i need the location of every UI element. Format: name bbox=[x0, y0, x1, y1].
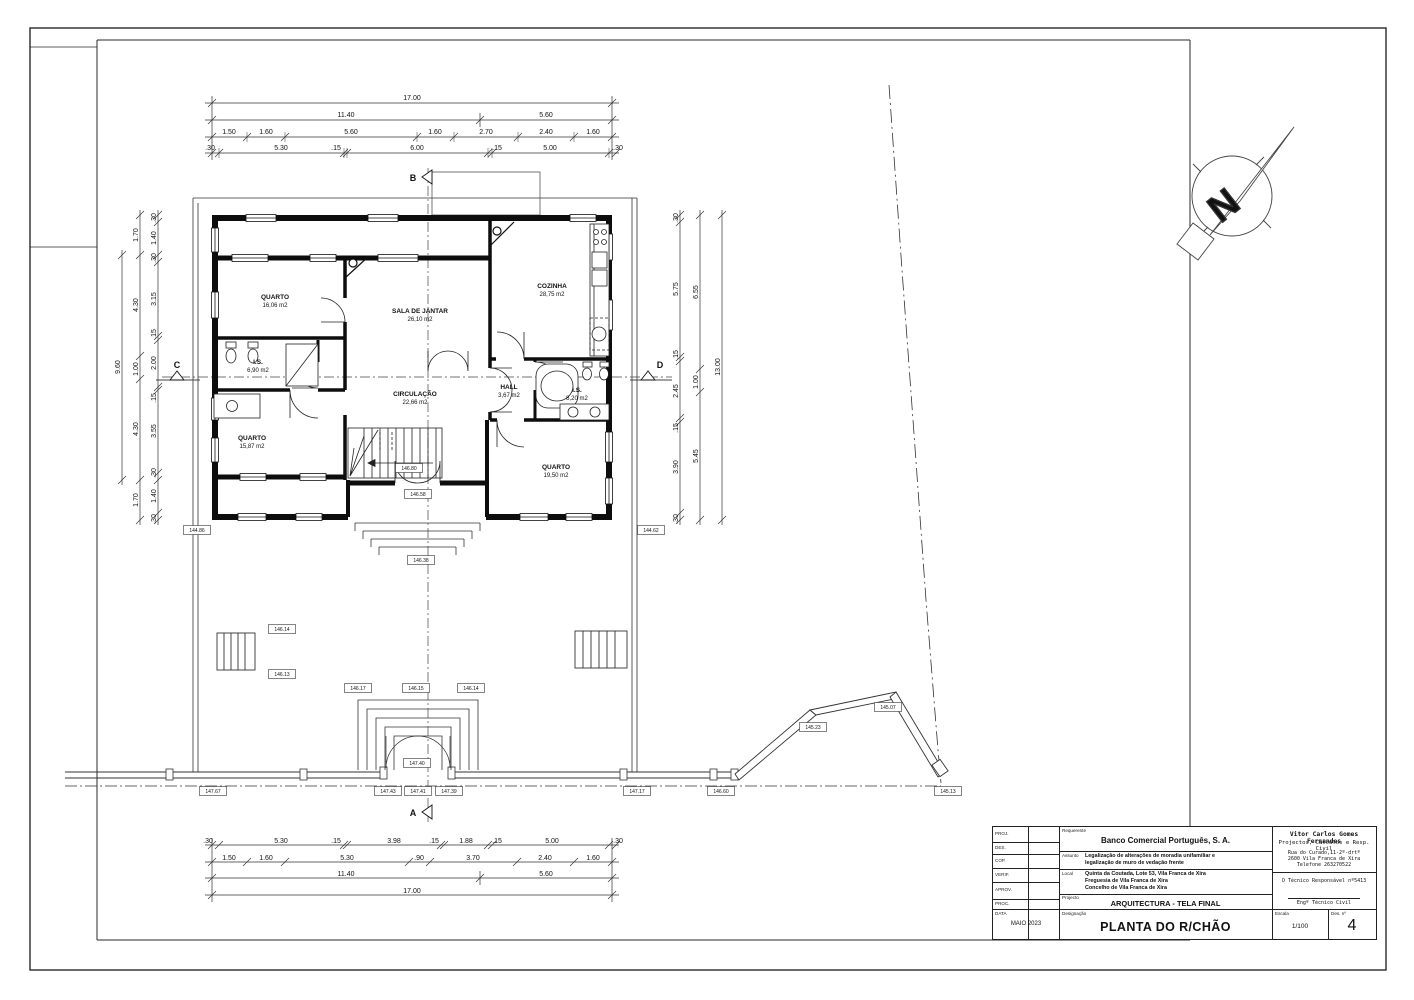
room-area: 3,67 m2 bbox=[498, 393, 520, 399]
dimension-label: 5.60 bbox=[539, 112, 553, 119]
north-arrow-icon: N bbox=[1177, 127, 1294, 260]
dimension-label: .15 bbox=[331, 838, 341, 845]
dimension-label: .90 bbox=[414, 855, 424, 862]
level-badge: 147.41 bbox=[405, 787, 432, 796]
field-local-label: Local bbox=[1062, 871, 1073, 876]
dimension-label: .15 bbox=[331, 145, 341, 152]
field-requerente-label: Requerente bbox=[1062, 828, 1086, 833]
field-aprov-label: APROV. bbox=[995, 887, 1012, 892]
north-letter: N bbox=[1200, 181, 1247, 231]
dimension-labels-bottom: .30 5.30 .15 3.98 .15 1.88 .15 5.00 .30 … bbox=[203, 838, 623, 895]
dimension-label: 3.15 bbox=[151, 292, 158, 306]
dimension-label: .15 bbox=[429, 838, 439, 845]
room-area: 15,87 m2 bbox=[239, 444, 265, 450]
dimension-label: .15 bbox=[492, 838, 502, 845]
field-drawing-number: 4 bbox=[1328, 917, 1376, 935]
svg-text:146.38: 146.38 bbox=[413, 558, 429, 564]
field-address-3: Telefone 263270522 bbox=[1272, 862, 1376, 868]
svg-text:147.40: 147.40 bbox=[409, 761, 425, 767]
field-des-label: DES. bbox=[995, 845, 1006, 850]
field-local-2: Freguesia de Vila Franca de Xira bbox=[1085, 878, 1168, 884]
svg-text:147.67: 147.67 bbox=[205, 789, 221, 795]
svg-text:146.17: 146.17 bbox=[350, 686, 366, 692]
dimension-label: .30 bbox=[613, 145, 623, 152]
dimension-label: 1.60 bbox=[259, 855, 273, 862]
dimension-label: .30 bbox=[203, 838, 213, 845]
dimension-label: 3.55 bbox=[151, 424, 158, 438]
dimension-label: 3.98 bbox=[387, 838, 401, 845]
section-marker-c: C bbox=[174, 360, 181, 370]
dimension-label: 4.30 bbox=[133, 298, 140, 312]
level-badge: 146.15 bbox=[403, 684, 430, 693]
room-label: HALL bbox=[500, 384, 517, 391]
svg-text:146.15: 146.15 bbox=[408, 686, 424, 692]
field-assunto-1: Legalização de alterações de moradia uni… bbox=[1085, 853, 1215, 859]
dimension-label: 4.30 bbox=[133, 422, 140, 436]
svg-text:146.13: 146.13 bbox=[274, 672, 290, 678]
level-badge: 146.60 bbox=[708, 787, 735, 796]
svg-text:144.86: 144.86 bbox=[189, 528, 205, 534]
level-badge: 145.07 bbox=[875, 703, 902, 712]
level-badge: 146.38 bbox=[408, 556, 435, 565]
dimension-label: .30 bbox=[151, 213, 158, 223]
svg-text:145.07: 145.07 bbox=[880, 705, 896, 711]
field-requerente: Banco Comercial Português, S. A. bbox=[1059, 836, 1272, 845]
section-marker-d: D bbox=[657, 360, 664, 370]
dimension-label: .30 bbox=[205, 145, 215, 152]
dimension-label: 5.30 bbox=[274, 838, 288, 845]
section-marker-b: B bbox=[410, 173, 417, 183]
field-proc-label: PROC. bbox=[995, 901, 1010, 906]
dimension-label: 11.40 bbox=[338, 871, 355, 878]
svg-text:147.39: 147.39 bbox=[441, 789, 457, 795]
dimension-label: .30 bbox=[673, 213, 680, 223]
level-badge: 147.67 bbox=[200, 787, 227, 796]
property-boundary-line bbox=[889, 85, 941, 783]
dimension-label: 2.45 bbox=[673, 384, 680, 398]
signature-line bbox=[1288, 898, 1360, 899]
dimension-label: 5.45 bbox=[693, 449, 700, 463]
level-badge: 146.58 bbox=[405, 490, 432, 499]
svg-text:147.43: 147.43 bbox=[380, 789, 396, 795]
dimension-label: .15 bbox=[673, 350, 680, 360]
svg-text:146.80: 146.80 bbox=[401, 466, 417, 472]
field-verif-label: VERIF. bbox=[995, 872, 1009, 877]
dimension-label: .15 bbox=[151, 329, 158, 339]
dimension-label: 1.50 bbox=[222, 129, 236, 136]
garden-steps-left bbox=[217, 633, 255, 670]
field-assunto-label: Assunto bbox=[1062, 853, 1079, 858]
level-badge: 146.80 bbox=[396, 464, 423, 473]
dimension-label: 1.50 bbox=[222, 855, 236, 862]
room-label: QUARTO bbox=[238, 435, 266, 442]
dimension-label: 1.00 bbox=[693, 375, 700, 389]
dimension-label: 5.75 bbox=[673, 282, 680, 296]
dimension-label: 3.70 bbox=[466, 855, 480, 862]
dimension-label: 5.60 bbox=[539, 871, 553, 878]
field-date: MAIO 2023 bbox=[993, 921, 1059, 927]
field-tecnico-title: Engº Técnico Civil bbox=[1272, 900, 1376, 906]
level-badge: 145.13 bbox=[935, 787, 962, 796]
dimension-label: 5.00 bbox=[545, 838, 559, 845]
level-badge: 144.62 bbox=[638, 526, 665, 535]
level-badge: 147.39 bbox=[436, 787, 463, 796]
dimension-label: 11.40 bbox=[338, 112, 355, 119]
dimension-label: 5.00 bbox=[543, 145, 557, 152]
dimension-label: 1.60 bbox=[586, 855, 600, 862]
room-label: I.S. bbox=[253, 359, 263, 366]
room-area: 19,50 m2 bbox=[543, 473, 569, 479]
dimension-label: 2.40 bbox=[539, 129, 553, 136]
dimension-label: .15 bbox=[673, 423, 680, 433]
site-works bbox=[65, 85, 948, 786]
dimension-label: 1.60 bbox=[586, 129, 600, 136]
title-block: PROJ. DES. COP. VERIF. APROV. PROC. DATA… bbox=[992, 826, 1377, 940]
dimension-label: 3.90 bbox=[673, 460, 680, 474]
room-label: QUARTO bbox=[542, 464, 570, 471]
svg-text:146.14: 146.14 bbox=[274, 627, 290, 633]
dimension-label: .15 bbox=[151, 393, 158, 403]
level-badge: 146.17 bbox=[345, 684, 372, 693]
dimension-labels-left: .30 1.40 .30 3.15 .15 2.00 .15 3.55 .30 … bbox=[115, 213, 158, 524]
dimension-label: 1.70 bbox=[133, 228, 140, 242]
dimension-label: 13.00 bbox=[715, 358, 722, 376]
field-cop-label: COP. bbox=[995, 858, 1006, 863]
room-label: I.S. bbox=[572, 387, 582, 394]
drawing-title: PLANTA DO R/CHÃO bbox=[1059, 920, 1272, 934]
upper-floor-outline bbox=[432, 172, 540, 215]
svg-text:146.58: 146.58 bbox=[410, 492, 426, 498]
dimension-label: 5.30 bbox=[274, 145, 288, 152]
room-area: 16,06 m2 bbox=[262, 303, 288, 309]
dimension-label: 1.88 bbox=[459, 838, 473, 845]
dimension-label: 17.00 bbox=[403, 95, 421, 102]
dimension-label: 6.00 bbox=[410, 145, 424, 152]
field-assunto-2: legalização de muro de vedação frente bbox=[1085, 860, 1184, 866]
dimension-label: .15 bbox=[492, 145, 502, 152]
dimension-label: .30 bbox=[151, 468, 158, 478]
field-local-3: Concelho de Vila Franca de Xira bbox=[1085, 885, 1167, 891]
svg-text:144.62: 144.62 bbox=[643, 528, 659, 534]
dimension-label: .30 bbox=[151, 514, 158, 524]
garden-steps-right bbox=[575, 631, 627, 668]
dimension-label: 2.00 bbox=[151, 356, 158, 370]
dimension-label: 17.00 bbox=[403, 888, 421, 895]
level-badge: 147.43 bbox=[375, 787, 402, 796]
room-label: CIRCULAÇÃO bbox=[393, 389, 437, 398]
svg-text:145.13: 145.13 bbox=[940, 789, 956, 795]
level-badge: 144.86 bbox=[184, 526, 211, 535]
dimension-label: 2.70 bbox=[479, 129, 493, 136]
dimension-label: 5.30 bbox=[340, 855, 354, 862]
room-area: 8,20 m2 bbox=[566, 396, 588, 402]
level-badge: 146.13 bbox=[269, 670, 296, 679]
dimension-label: 1.60 bbox=[428, 129, 442, 136]
field-designacao-label: Designação bbox=[1062, 911, 1086, 916]
dimension-label: 1.40 bbox=[151, 231, 158, 245]
dimension-label: .30 bbox=[151, 253, 158, 263]
room-label: QUARTO bbox=[261, 294, 289, 301]
room-area: 22,66 m2 bbox=[402, 400, 428, 406]
svg-text:146.14: 146.14 bbox=[463, 686, 479, 692]
room-area: 6,90 m2 bbox=[247, 368, 269, 374]
section-marker-a: A bbox=[410, 808, 417, 818]
level-badge: 146.14 bbox=[458, 684, 485, 693]
dimension-label: .30 bbox=[673, 514, 680, 524]
svg-text:147.41: 147.41 bbox=[410, 789, 426, 795]
dimension-label: 2.40 bbox=[538, 855, 552, 862]
drawing-sheet: QUARTO 16,06 m2 SALA DE JANTAR 26,10 m2 … bbox=[0, 0, 1414, 1000]
room-label: SALA DE JANTAR bbox=[392, 308, 448, 315]
field-escala-label: Escala bbox=[1275, 911, 1289, 916]
field-proj-label: PROJ. bbox=[995, 831, 1009, 836]
field-local-1: Quinta da Coutada, Lote 53, Vila Franca … bbox=[1085, 871, 1206, 877]
svg-text:145.23: 145.23 bbox=[805, 725, 821, 731]
dimension-label: 1.70 bbox=[133, 493, 140, 507]
room-label: COZINHA bbox=[537, 283, 567, 290]
room-area: 28,75 m2 bbox=[539, 292, 565, 298]
level-badge: 146.14 bbox=[269, 625, 296, 634]
svg-text:147.17: 147.17 bbox=[629, 789, 645, 795]
dimension-label: .30 bbox=[613, 838, 623, 845]
field-tecnico: O Técnico Responsável nº5413 bbox=[1272, 878, 1376, 884]
svg-text:146.60: 146.60 bbox=[713, 789, 729, 795]
dimension-label: 1.40 bbox=[151, 489, 158, 503]
dimension-label: 9.60 bbox=[115, 360, 122, 374]
dimension-labels-top: 17.00 11.40 5.60 1.50 1.60 5.60 1.60 2.7… bbox=[205, 95, 623, 152]
field-data-label: DATA bbox=[995, 911, 1007, 916]
field-escala: 1/100 bbox=[1272, 923, 1328, 930]
dimension-label: 1.00 bbox=[133, 362, 140, 376]
room-area: 26,10 m2 bbox=[407, 317, 433, 323]
level-badge: 145.23 bbox=[800, 723, 827, 732]
field-projecto: ARQUITECTURA - TELA FINAL bbox=[1059, 899, 1272, 908]
level-badge: 147.40 bbox=[404, 759, 431, 768]
level-badge: 147.17 bbox=[624, 787, 651, 796]
dimension-label: 1.60 bbox=[259, 129, 273, 136]
field-desno-label: Des. nº bbox=[1331, 911, 1346, 916]
dimension-label: 6.55 bbox=[693, 285, 700, 299]
dimension-label: 5.60 bbox=[344, 129, 358, 136]
